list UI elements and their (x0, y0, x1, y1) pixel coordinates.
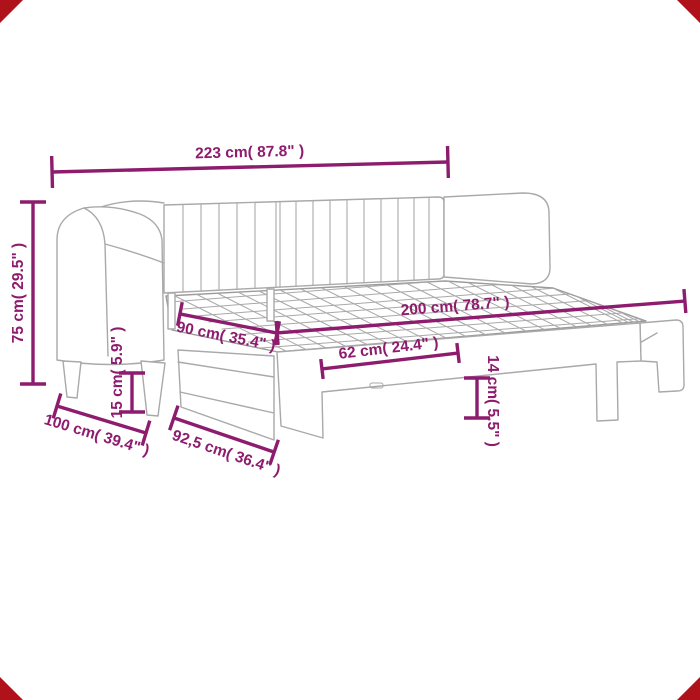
front-left-leg (141, 361, 165, 416)
dim-total-height-label: 75 cm( 29.5" ) (10, 243, 27, 343)
daybed-line-drawing (57, 193, 700, 440)
dim-total-width: 223 cm( 87.8" ) (51, 139, 448, 188)
backrest-leg-2 (267, 289, 274, 321)
dimension-diagram: 223 cm( 87.8" ) 75 cm( 29.5" ) 200 cm( 7… (0, 0, 700, 700)
right-side-panel (640, 320, 684, 392)
backrest-panel (164, 197, 444, 293)
right-armrest (444, 193, 550, 284)
back-left-leg (63, 361, 81, 398)
dim-total-width-label: 223 cm( 87.8" ) (195, 143, 304, 163)
daybed-diagram-svg: 223 cm( 87.8" ) 75 cm( 29.5" ) 200 cm( 7… (0, 0, 700, 700)
dim-total-height: 75 cm( 29.5" ) (10, 202, 46, 384)
corner-marker-top-left (0, 0, 23, 23)
dim-right-clearance-label: 14 cm( 5.5" ) (484, 355, 501, 447)
dim-left-clearance-label: 15 cm( 5.9" ) (109, 327, 126, 419)
backrest-leg-1 (168, 293, 175, 329)
corner-marker-top-right (677, 0, 700, 23)
corner-marker-bottom-right (677, 677, 700, 700)
dim-total-depth: 100 cm( 39.4" ) (42, 391, 157, 459)
corner-marker-bottom-left (0, 677, 23, 700)
